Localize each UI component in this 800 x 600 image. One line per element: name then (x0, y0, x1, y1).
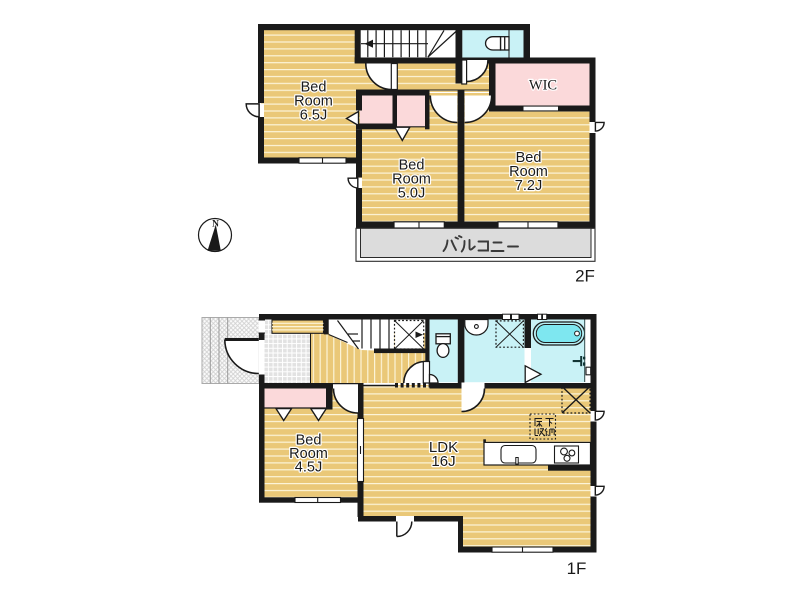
svg-text:5.0J: 5.0J (398, 186, 425, 202)
svg-text:4.5J: 4.5J (295, 460, 322, 476)
svg-text:16J: 16J (431, 453, 455, 470)
svg-text:2F: 2F (575, 267, 595, 286)
svg-text:7.2J: 7.2J (515, 178, 542, 194)
svg-text:WIC: WIC (529, 78, 557, 94)
svg-text:1F: 1F (567, 559, 587, 578)
svg-text:N: N (212, 220, 219, 230)
svg-text:6.5J: 6.5J (300, 108, 327, 124)
